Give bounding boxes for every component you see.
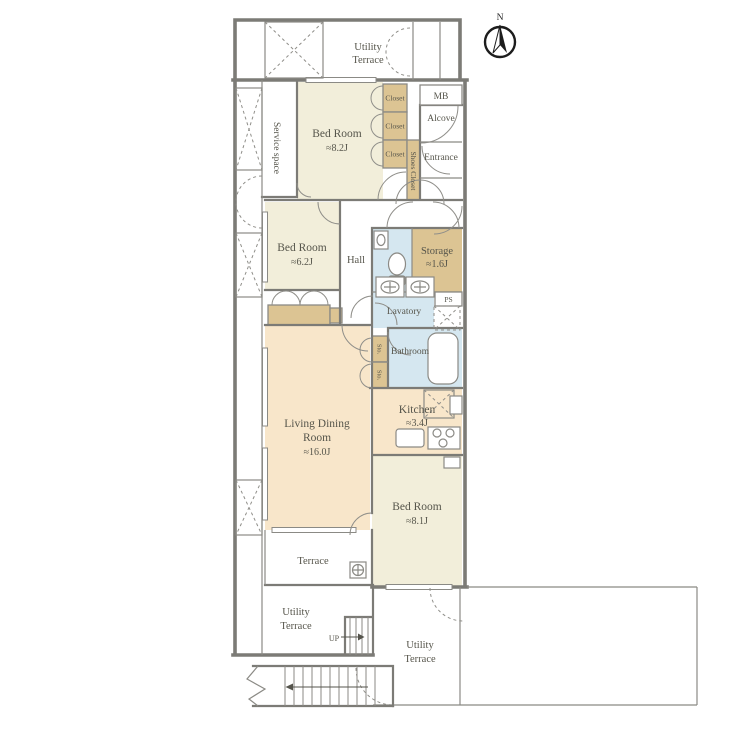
storage-size: ≈1.6J [426,259,448,270]
bathroom-label: Bathroom [391,347,430,357]
closet-c-label: Closet [385,150,405,159]
lavatory-label: Lavatory [387,307,422,317]
sto-a-label: Sto. [376,344,383,355]
bedroom-6-2-label: Bed Room [277,242,327,254]
utility-terrace-top-label-2: Terrace [352,55,384,66]
window-terrace [272,528,356,533]
ps-label: PS [444,295,452,304]
terrace-label: Terrace [297,556,329,567]
bedroom-8-1-size: ≈8.1J [406,516,428,527]
up-label: UP [329,634,340,643]
service-space-label: Service space [271,122,281,174]
stove-burner [433,429,441,437]
wc-basin-bowl [377,235,385,246]
living-dining-label-1: Living Dining [284,418,350,430]
bedroom-8-1-shelf [444,457,460,468]
compass-north-label: N [497,13,504,23]
living-dining-size: ≈16.0J [304,447,331,458]
floor-plan: Utility Terrace Service space Bed Room ≈… [0,0,734,734]
utility-terrace-left-label-1: Utility [282,607,310,618]
kitchen-counter-box [450,396,462,414]
kitchen-size: ≈3.4J [406,418,428,429]
stove-burner [439,439,447,447]
stove-burner [446,429,454,437]
window-bedroom-8-1 [386,585,452,590]
mb-label: MB [434,92,449,102]
closet-b-label: Closet [385,122,405,131]
bedroom-6-2-closet [268,305,330,325]
toilet-icon [389,253,406,275]
void-left-2 [236,233,262,297]
utility-terrace-right-label-2: Terrace [404,654,436,665]
window-living-1 [263,348,268,426]
bedroom-8-2-size: ≈8.2J [326,143,348,154]
closet-a-label: Closet [385,94,405,103]
kitchen-label: Kitchen [399,404,436,416]
living-dining-label-2: Room [303,432,331,444]
room-bedroom-8-2 [297,82,383,200]
entrance-label: Entrance [424,153,458,163]
alcove-label: Alcove [427,114,454,124]
shoes-closet-label: Shoes Closet [409,152,418,192]
bedroom-6-2-size: ≈6.2J [291,257,313,268]
bathtub-icon [428,333,458,384]
hall-label: Hall [347,255,365,266]
stairs-break-symbol [247,666,265,706]
stairs-bottom [247,666,393,706]
bedroom-8-2-label: Bed Room [312,128,362,140]
sto-b-label: Sto. [376,370,383,381]
storage-label: Storage [421,246,453,257]
kitchen-sink [396,429,424,447]
utility-terrace-right-label-1: Utility [406,640,434,651]
window-bedroom-6-2 [263,212,268,282]
window-living-2 [263,448,268,520]
utility-terrace-left-label-2: Terrace [280,621,312,632]
bedroom-8-1-label: Bed Room [392,501,442,513]
utility-terrace-top-label-1: Utility [354,42,382,53]
compass-icon: N [485,13,515,57]
